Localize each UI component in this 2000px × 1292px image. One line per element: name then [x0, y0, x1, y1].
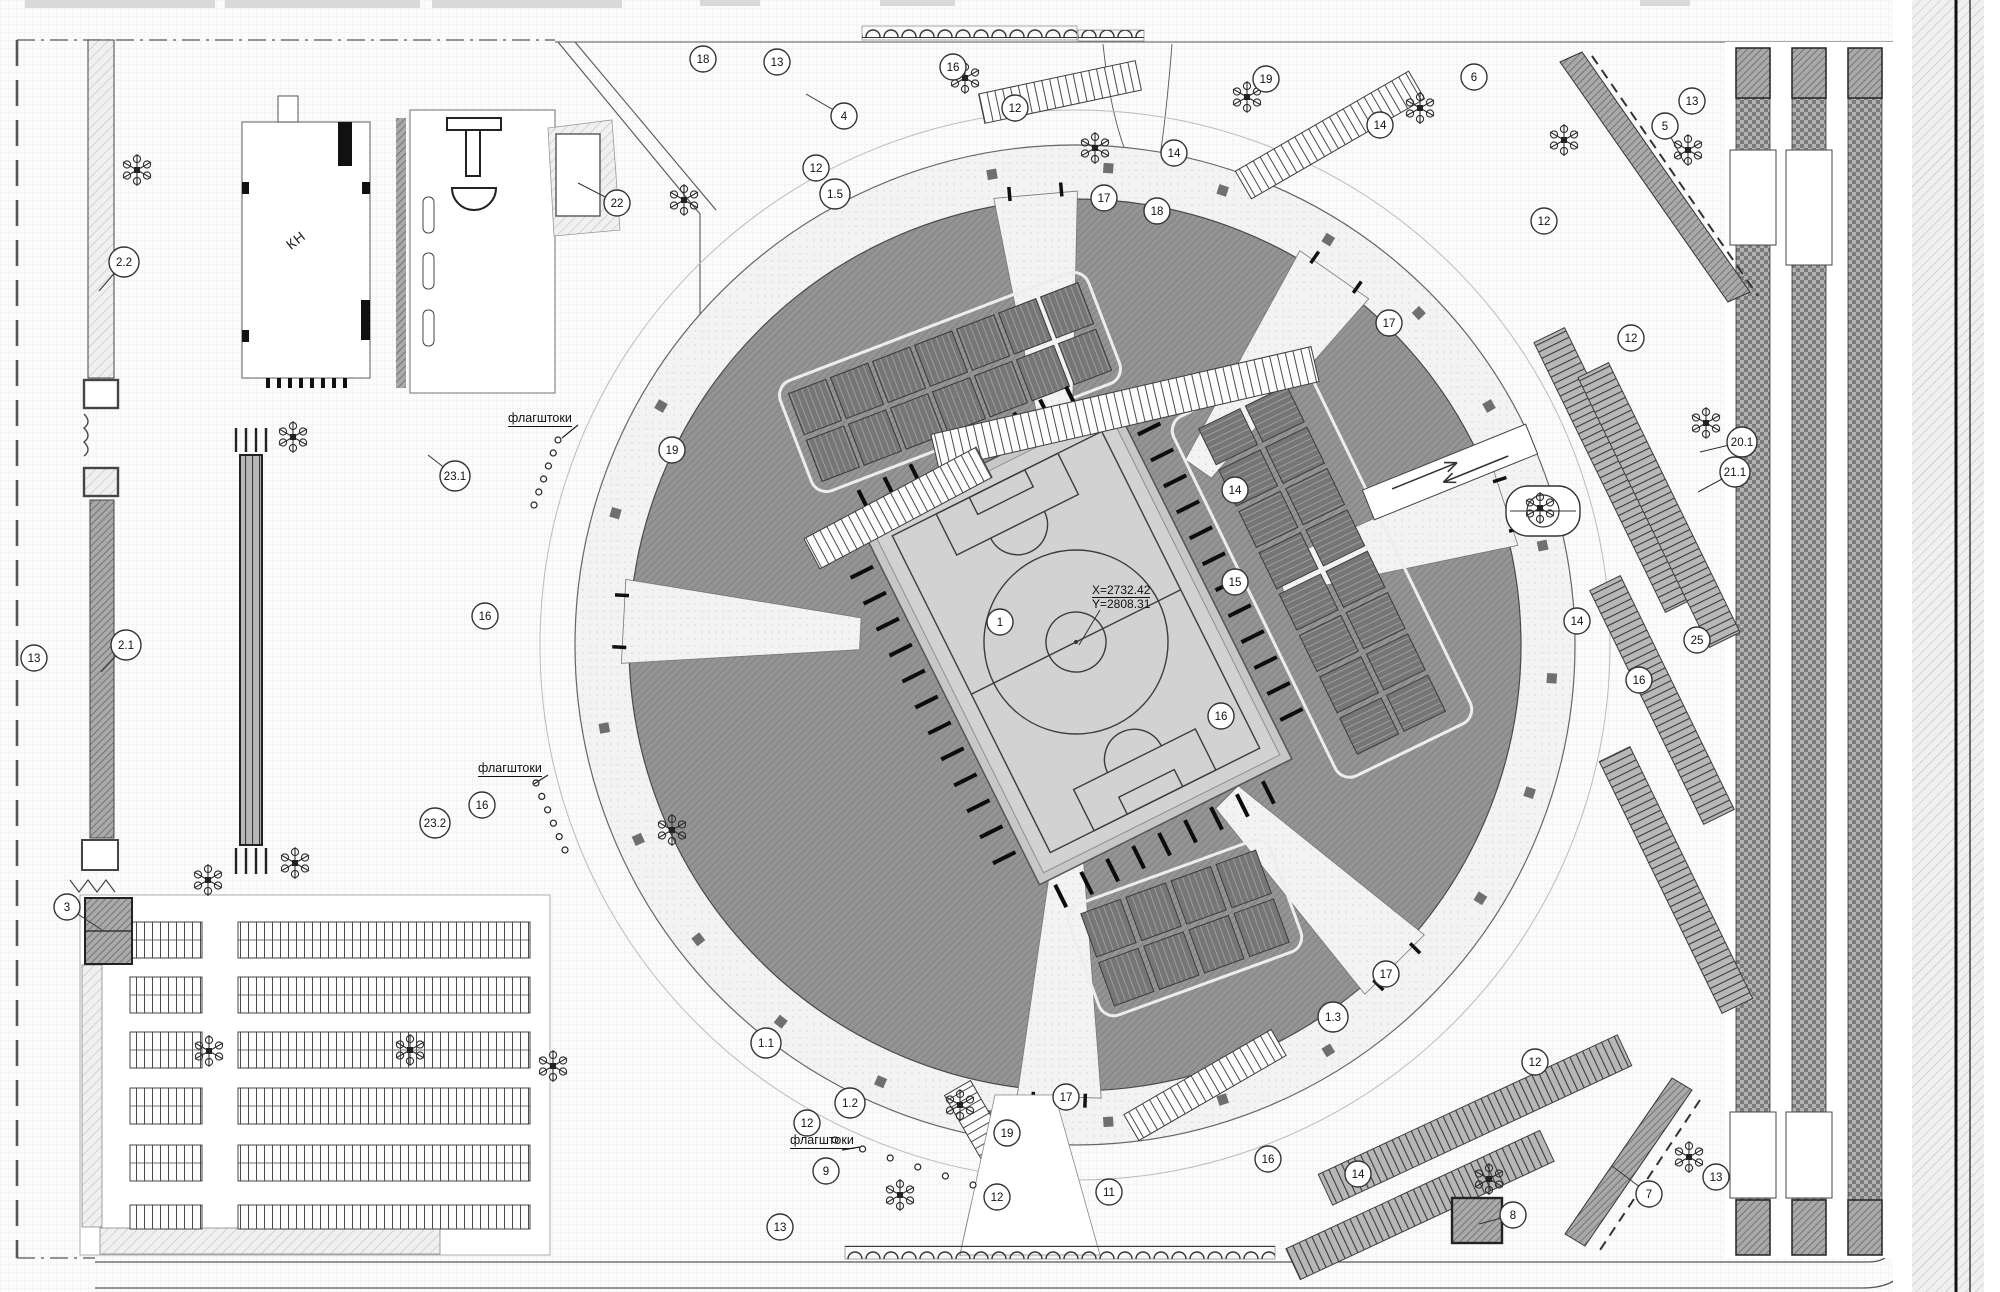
- callout-number: 4: [841, 111, 848, 123]
- gate-post: [1009, 187, 1010, 201]
- parking-islands: [423, 197, 434, 346]
- callout-number: 8: [1510, 1210, 1516, 1222]
- callout-number: 12: [1538, 216, 1551, 228]
- callout-number: 2.1: [118, 640, 134, 652]
- flagpole-dot: [545, 463, 551, 469]
- flagpole-dot: [860, 1146, 866, 1152]
- callout-number: 16: [479, 611, 492, 623]
- callout-number: 18: [1151, 206, 1164, 218]
- callout-number: 22: [611, 198, 624, 210]
- callout-number: 12: [1625, 333, 1638, 345]
- callout-number: 16: [1633, 675, 1646, 687]
- callout-number: 14: [1571, 616, 1584, 628]
- gate-post: [615, 595, 629, 596]
- callout-number: 12: [1009, 103, 1022, 115]
- right-road-verge: [1912, 0, 2000, 1292]
- flagpole-dot: [536, 489, 542, 495]
- flagpole-dot: [555, 437, 561, 443]
- callout-number: 1.1: [758, 1038, 774, 1050]
- callout-number: 5: [1662, 121, 1668, 133]
- callout-number: 16: [947, 62, 960, 74]
- pergola-strip: [236, 428, 266, 874]
- callout-number: 17: [1383, 318, 1396, 330]
- rail-corridor: [1725, 0, 1912, 1292]
- callout-number: 12: [991, 1192, 1004, 1204]
- callout-number: 17: [1380, 969, 1393, 981]
- callout-number: 14: [1352, 1169, 1365, 1181]
- pavement-inlay: [986, 169, 998, 181]
- parking-lot-southwest: [80, 895, 550, 1255]
- callout-number: 18: [697, 54, 710, 66]
- callout-number: 20.1: [1731, 437, 1753, 449]
- callout-number: 1.2: [842, 1098, 858, 1110]
- callout-number: 14: [1374, 120, 1387, 132]
- callout-number: 1.3: [1325, 1012, 1341, 1024]
- flagpole-dot: [562, 847, 568, 853]
- coordinate-x-value: X=2732.42: [1092, 584, 1150, 598]
- gate-post: [1061, 182, 1062, 196]
- callout-number: 13: [771, 57, 784, 69]
- callout-number: 21.1: [1724, 467, 1746, 479]
- flagpole-dot: [970, 1182, 976, 1188]
- flagpole-dot: [541, 476, 547, 482]
- loading-strip: [396, 118, 406, 388]
- callout-number: 12: [801, 1118, 814, 1130]
- callout-number: 6: [1471, 72, 1477, 84]
- callout-number: 12: [1529, 1057, 1542, 1069]
- flagpole-dot: [556, 834, 562, 840]
- flagpole-label: флагштоки: [790, 1134, 854, 1149]
- small-building-22: [556, 134, 600, 216]
- callout-number: 17: [1098, 193, 1111, 205]
- callout-number: 13: [774, 1222, 787, 1234]
- parking-row: [130, 1205, 202, 1229]
- callout-number: 14: [1168, 148, 1181, 160]
- flagpole-dot: [531, 502, 537, 508]
- coordinate-mark: X=2732.42 Y=2808.31: [1092, 584, 1150, 611]
- coordinate-y-value: Y=2808.31: [1092, 598, 1150, 611]
- pavement-inlay: [1546, 673, 1557, 684]
- callout-number: 3: [64, 902, 70, 914]
- callout-number: 13: [1686, 96, 1699, 108]
- site-plan-drawing: 11.11.21.31.52.12.2345678911121212121212…: [0, 0, 2000, 1292]
- callout-number: 1.5: [827, 189, 843, 201]
- callout-number: 12: [810, 163, 823, 175]
- pavement-inlay: [599, 722, 611, 734]
- pavement-inlay: [1103, 163, 1114, 174]
- callout-number: 19: [666, 445, 679, 457]
- flagpole-label: флагштоки: [508, 412, 572, 427]
- site-plan-canvas: 11.11.21.31.52.12.2345678911121212121212…: [0, 0, 2000, 1292]
- flagpole-dot: [550, 820, 556, 826]
- callout-number: 23.2: [424, 818, 446, 830]
- callout-number: 16: [476, 800, 489, 812]
- callout-number: 23.1: [444, 471, 466, 483]
- callout-number: 15: [1229, 577, 1242, 589]
- callout-number: 13: [1710, 1172, 1723, 1184]
- parking-row: [238, 1205, 530, 1229]
- callout-number: 16: [1215, 711, 1228, 723]
- flagpole-dot: [545, 807, 551, 813]
- callout-number: 16: [1262, 1154, 1275, 1166]
- callout-number: 7: [1646, 1189, 1652, 1201]
- callout-number: 17: [1060, 1092, 1073, 1104]
- pavement-inlay: [1103, 1116, 1114, 1127]
- flagpole-dot: [539, 793, 545, 799]
- flagpole-dot: [887, 1155, 893, 1161]
- callout-number: 13: [28, 653, 41, 665]
- callout-number: 25: [1691, 635, 1704, 647]
- gate-post: [612, 647, 626, 648]
- callout-number: 1: [997, 617, 1003, 629]
- callout-number: 9: [823, 1166, 829, 1178]
- callout-number: 14: [1229, 485, 1242, 497]
- building-8: [1452, 1198, 1502, 1243]
- flagpole-dot: [915, 1164, 921, 1170]
- flagpole-dot: [942, 1173, 948, 1179]
- pavement-inlay: [1537, 540, 1549, 552]
- flagpole-label: флагштоки: [478, 762, 542, 777]
- callout-number: 19: [1001, 1128, 1014, 1140]
- callout-number: 19: [1260, 74, 1273, 86]
- callout-number: 2.2: [116, 257, 132, 269]
- callout-number: 11: [1103, 1187, 1115, 1199]
- flagpole-dot: [550, 450, 556, 456]
- road-gap: [1893, 0, 1912, 1292]
